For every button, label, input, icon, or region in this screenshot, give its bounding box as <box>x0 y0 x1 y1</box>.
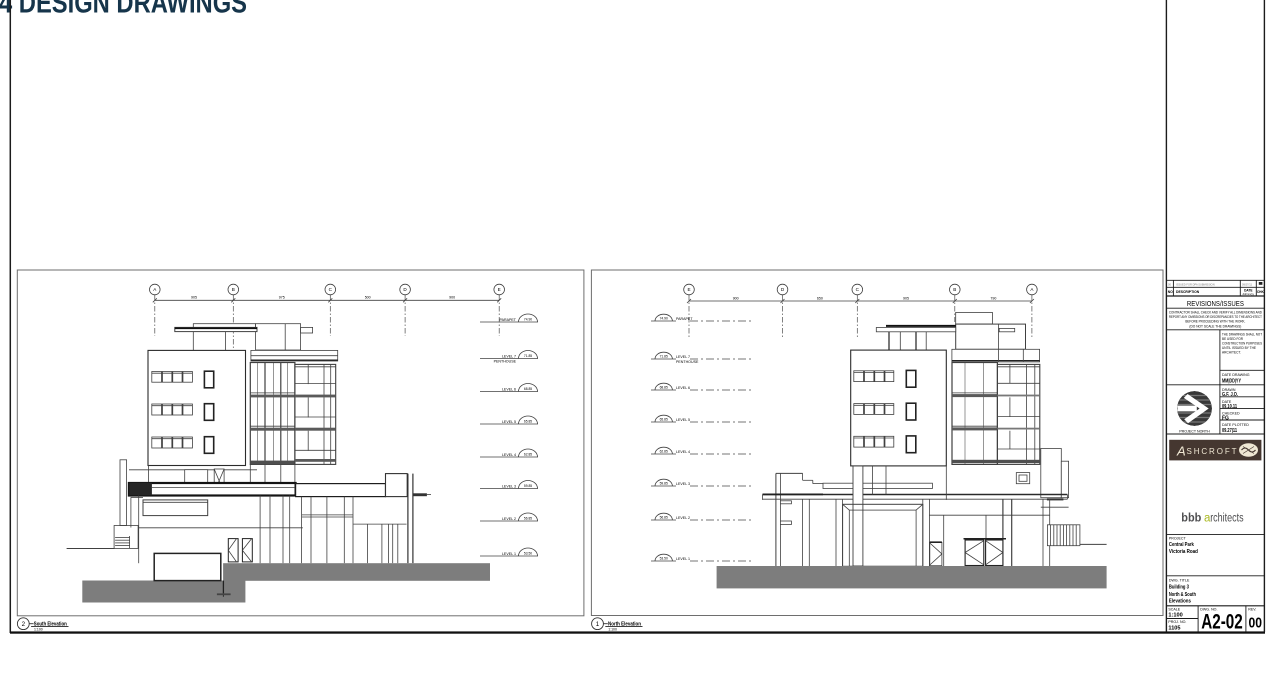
svg-text:59.85: 59.85 <box>524 484 532 488</box>
svg-text:PENTHOUSE: PENTHOUSE <box>494 359 517 363</box>
svg-text:PARAPET: PARAPET <box>499 318 516 322</box>
svg-text:BE USED FOR: BE USED FOR <box>1222 337 1243 341</box>
svg-text:PROJ. NO.: PROJ. NO. <box>1168 620 1186 624</box>
svg-text:LEVEL 6: LEVEL 6 <box>502 387 516 391</box>
svg-text:rchitects: rchitects <box>1210 513 1244 525</box>
svg-text:1:100: 1:100 <box>608 627 617 631</box>
svg-text:1: 1 <box>596 621 600 628</box>
svg-text:ISSUED FOR DPA SUBMISSION: ISSUED FOR DPA SUBMISSION <box>1176 282 1215 286</box>
svg-text:B: B <box>232 287 235 292</box>
svg-text:53.50: 53.50 <box>660 557 668 561</box>
svg-text:DESCRIPTION: DESCRIPTION <box>1176 290 1200 294</box>
svg-text:09.10.11: 09.10.11 <box>1222 404 1237 410</box>
svg-text:CHK: CHK <box>1257 290 1265 294</box>
svg-text:65.85: 65.85 <box>524 420 532 424</box>
svg-text:CONSTRUCTION PURPOSES: CONSTRUCTION PURPOSES <box>1222 342 1262 346</box>
svg-text:NO.: NO. <box>1168 290 1174 294</box>
svg-text:PENTHOUSE: PENTHOUSE <box>676 360 699 364</box>
svg-text:G.F. J.O.: G.F. J.O. <box>1222 392 1238 398</box>
svg-text:MM|DD|YY: MM|DD|YY <box>1222 378 1241 384</box>
svg-text:900: 900 <box>449 296 455 300</box>
svg-text:Elevations: Elevations <box>1169 599 1191 605</box>
svg-text:SHCROFT: SHCROFT <box>1187 447 1237 456</box>
svg-text:North & South: North & South <box>1169 592 1196 598</box>
svg-text:500: 500 <box>365 296 371 300</box>
svg-text:59.85: 59.85 <box>660 482 668 486</box>
svg-text:71.85: 71.85 <box>524 354 532 358</box>
svg-text:Victoria Road: Victoria Road <box>1169 549 1198 555</box>
svg-text:dd/mm/yy: dd/mm/yy <box>1243 292 1255 296</box>
svg-text:DWG. TITLE: DWG. TITLE <box>1169 579 1190 583</box>
svg-text:56.85: 56.85 <box>660 516 668 520</box>
svg-text:09/27/11: 09/27/11 <box>1242 282 1252 286</box>
svg-text:ARCHITECT.: ARCHITECT. <box>1222 351 1241 355</box>
svg-text:68.85: 68.85 <box>524 387 532 391</box>
svg-text:SCALE: SCALE <box>1168 607 1180 611</box>
svg-text:PARAPET: PARAPET <box>676 317 693 321</box>
svg-text:bbb: bbb <box>1181 513 1201 525</box>
svg-text:00: 00 <box>1249 615 1263 631</box>
svg-text:1105: 1105 <box>1168 625 1180 631</box>
svg-text:56.85: 56.85 <box>524 517 532 521</box>
svg-text:09.27|11: 09.27|11 <box>1222 428 1237 434</box>
svg-text:905: 905 <box>191 296 197 300</box>
svg-text:LEVEL 4: LEVEL 4 <box>502 453 516 457</box>
svg-text:LEVEL 7: LEVEL 7 <box>502 354 516 358</box>
svg-text:790: 790 <box>990 296 996 300</box>
svg-text:REVISIONS/ISSUES: REVISIONS/ISSUES <box>1187 299 1244 308</box>
svg-text:Central Park: Central Park <box>1169 542 1195 548</box>
svg-text:LEVEL 3: LEVEL 3 <box>502 484 516 488</box>
svg-text:PROJECT NORTH: PROJECT NORTH <box>1179 430 1210 434</box>
svg-text:A2-02: A2-02 <box>1201 609 1243 633</box>
svg-text:REV.: REV. <box>1248 607 1256 611</box>
svg-text:LEVEL 3: LEVEL 3 <box>676 482 690 486</box>
svg-text:B: B <box>953 287 956 292</box>
svg-text:4 DESIGN DRAWINGS: 4 DESIGN DRAWINGS <box>0 0 247 19</box>
svg-text:LEVEL 2: LEVEL 2 <box>676 516 690 520</box>
svg-text:900: 900 <box>733 296 739 300</box>
svg-text:74.90: 74.90 <box>524 318 532 322</box>
svg-text:DATE: DATE <box>1244 288 1252 292</box>
svg-text:1:100: 1:100 <box>1168 612 1182 618</box>
svg-text:62.85: 62.85 <box>524 453 532 457</box>
svg-text:LEVEL 5: LEVEL 5 <box>502 420 516 424</box>
svg-text:PROJECT: PROJECT <box>1169 537 1187 541</box>
svg-text:FG: FG <box>1222 415 1229 421</box>
svg-text:LEVEL 4: LEVEL 4 <box>676 450 690 454</box>
svg-text:THE DRAWINGS SHALL NOT: THE DRAWINGS SHALL NOT <box>1222 333 1263 337</box>
svg-text:DATE PLOTTED: DATE PLOTTED <box>1222 423 1249 427</box>
svg-text:DATE DRAWING: DATE DRAWING <box>1222 373 1250 377</box>
svg-text:E: E <box>687 287 690 292</box>
svg-text:975: 975 <box>279 296 285 300</box>
svg-text:2: 2 <box>22 621 26 628</box>
svg-text:A: A <box>1176 444 1186 459</box>
svg-text:650: 650 <box>817 296 823 300</box>
svg-text:LEVEL 6: LEVEL 6 <box>676 386 690 390</box>
svg-text:E: E <box>498 287 501 292</box>
svg-text:LEVEL 1: LEVEL 1 <box>502 552 516 556</box>
svg-text:65.85: 65.85 <box>660 418 668 422</box>
svg-text:(DO NOT SCALE THE DRAWINGS): (DO NOT SCALE THE DRAWINGS) <box>1189 324 1242 329</box>
svg-text:62.85: 62.85 <box>660 450 668 454</box>
svg-text:71.85: 71.85 <box>660 355 668 359</box>
svg-text:53.50: 53.50 <box>524 552 532 556</box>
svg-text:74.90: 74.90 <box>660 317 668 321</box>
svg-text:905: 905 <box>903 296 909 300</box>
svg-text:68.85: 68.85 <box>660 386 668 390</box>
svg-text:LEVEL 2: LEVEL 2 <box>502 517 516 521</box>
svg-text:LEVEL 5: LEVEL 5 <box>676 418 690 422</box>
svg-text:1:100: 1:100 <box>34 627 43 631</box>
svg-text:LEVEL 1: LEVEL 1 <box>676 557 690 561</box>
svg-text:LEVEL 7: LEVEL 7 <box>676 355 690 359</box>
svg-text:UNTIL ISSUED BY THE: UNTIL ISSUED BY THE <box>1222 346 1256 350</box>
svg-text:Building 3: Building 3 <box>1169 585 1189 591</box>
